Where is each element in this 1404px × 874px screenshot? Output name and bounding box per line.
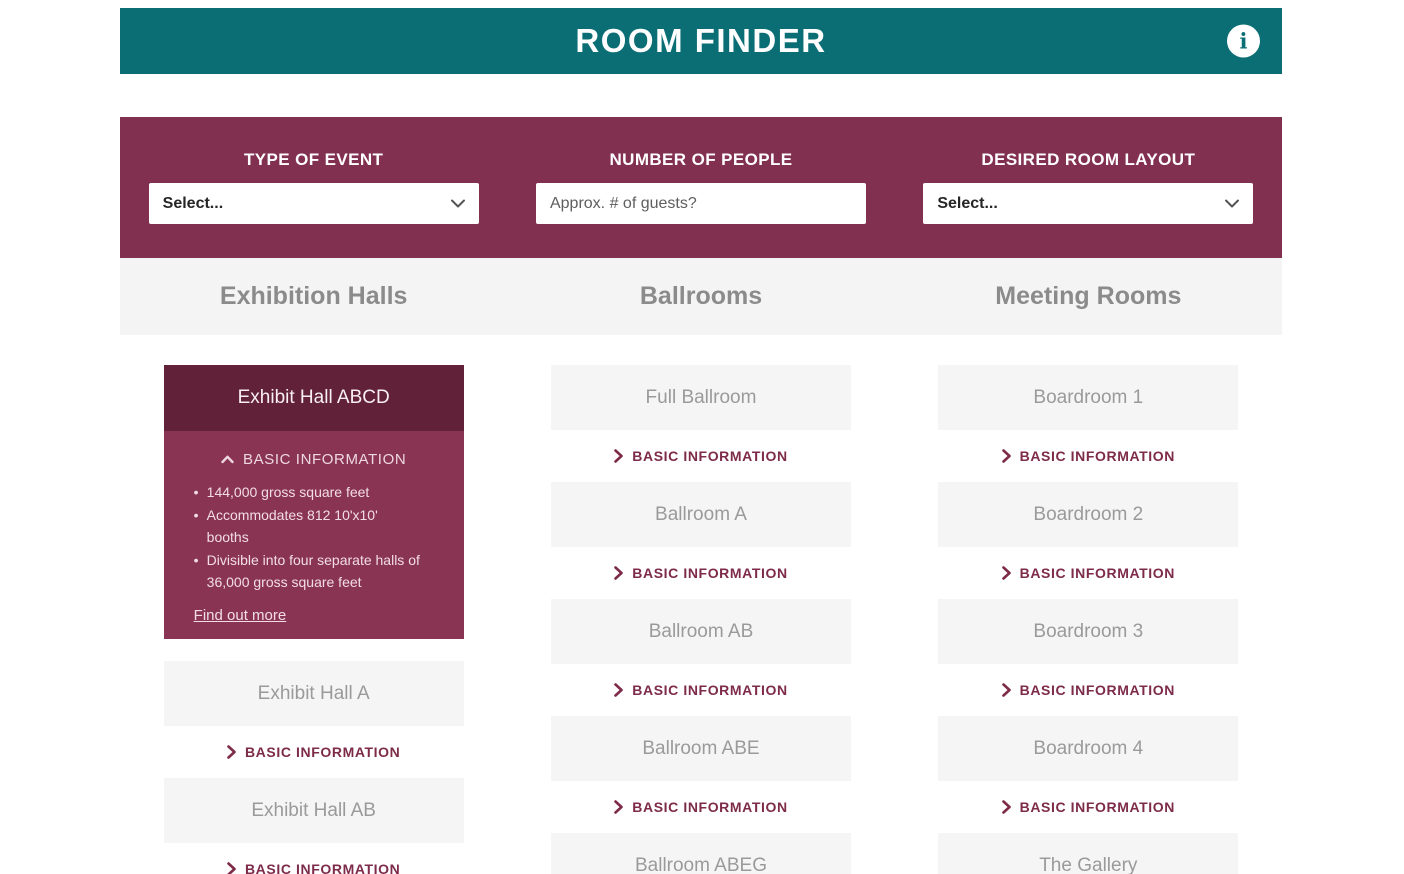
room-card-collapsed: Exhibit Hall AB BASIC INFORMATION [164, 778, 464, 874]
room-name: Ballroom A [655, 504, 747, 526]
room-detail-item: Divisible into four separate halls of 36… [194, 549, 421, 593]
basic-information-toggle[interactable]: BASIC INFORMATION [938, 547, 1238, 599]
basic-information-label: BASIC INFORMATION [632, 682, 787, 698]
header-bar: ROOM FINDER i [120, 8, 1282, 74]
chevron-right-icon [227, 862, 236, 874]
chevron-right-icon [1002, 566, 1011, 580]
number-of-people-label: NUMBER OF PEOPLE [609, 150, 792, 170]
room-name: Exhibit Hall AB [251, 800, 376, 822]
chevron-right-icon [1002, 683, 1011, 697]
room-details-list: 144,000 gross square feetAccommodates 81… [164, 481, 464, 593]
basic-information-toggle[interactable]: BASIC INFORMATION [551, 781, 851, 833]
room-detail-item: Accommodates 812 10'x10' booths [194, 504, 421, 548]
basic-information-toggle[interactable]: BASIC INFORMATION [551, 430, 851, 482]
page-title: ROOM FINDER [575, 22, 826, 60]
filter-group-desired-room-layout: DESIRED ROOM LAYOUT Select... [895, 117, 1282, 258]
room-name-box[interactable]: Boardroom 3 [938, 599, 1238, 664]
room-name: Boardroom 2 [1033, 504, 1143, 526]
room-name-box[interactable]: Ballroom A [551, 482, 851, 547]
basic-information-label: BASIC INFORMATION [632, 448, 787, 464]
room-name-box[interactable]: Ballroom ABE [551, 716, 851, 781]
chevron-right-icon [227, 745, 236, 759]
room-name-box[interactable]: Boardroom 2 [938, 482, 1238, 547]
section-title-exhibition-halls: Exhibition Halls [120, 282, 507, 311]
basic-information-label: BASIC INFORMATION [245, 861, 400, 874]
type-of-event-label: TYPE OF EVENT [244, 150, 383, 170]
basic-information-label: BASIC INFORMATION [1020, 448, 1175, 464]
basic-information-label: BASIC INFORMATION [632, 799, 787, 815]
basic-information-toggle[interactable]: BASIC INFORMATION [938, 781, 1238, 833]
room-name: Boardroom 4 [1033, 738, 1143, 760]
room-card-collapsed: Ballroom ABE BASIC INFORMATION [551, 716, 851, 833]
filter-group-type-of-event: TYPE OF EVENT Select... [120, 117, 507, 258]
room-card-collapsed: Ballroom AB BASIC INFORMATION [551, 599, 851, 716]
chevron-down-icon [451, 199, 465, 208]
room-name-box[interactable]: Exhibit Hall AB [164, 778, 464, 843]
room-card-expanded: Exhibit Hall ABCD BASIC INFORMATION 144,… [164, 365, 464, 639]
chevron-right-icon [614, 449, 623, 463]
room-name-box[interactable]: Ballroom ABEG [551, 833, 851, 874]
desired-room-layout-label: DESIRED ROOM LAYOUT [981, 150, 1195, 170]
chevron-right-icon [1002, 800, 1011, 814]
room-column-exhibition-halls: Exhibit Hall ABCD BASIC INFORMATION 144,… [120, 365, 507, 874]
room-card-collapsed: Exhibit Hall A BASIC INFORMATION [164, 661, 464, 778]
room-card-collapsed: Ballroom A BASIC INFORMATION [551, 482, 851, 599]
basic-information-label: BASIC INFORMATION [1020, 565, 1175, 581]
room-name-box[interactable]: Exhibit Hall A [164, 661, 464, 726]
room-name-box[interactable]: Ballroom AB [551, 599, 851, 664]
room-name: Exhibit Hall ABCD [238, 387, 390, 409]
chevron-right-icon [614, 566, 623, 580]
guest-count-input[interactable] [536, 183, 866, 224]
find-out-more-link[interactable]: Find out more [194, 607, 287, 624]
desired-room-layout-value: Select... [937, 195, 997, 213]
chevron-right-icon [614, 683, 623, 697]
room-card-collapsed: Boardroom 2 BASIC INFORMATION [938, 482, 1238, 599]
basic-information-label: BASIC INFORMATION [245, 744, 400, 760]
basic-information-label: BASIC INFORMATION [632, 565, 787, 581]
room-name: Ballroom ABEG [635, 855, 767, 874]
room-name: Exhibit Hall A [258, 683, 370, 705]
section-title-bar: Exhibition Halls Ballrooms Meeting Rooms [120, 258, 1282, 335]
room-name: Boardroom 3 [1033, 621, 1143, 643]
room-card-collapsed: Full Ballroom BASIC INFORMATION [551, 365, 851, 482]
room-details-panel: BASIC INFORMATION 144,000 gross square f… [164, 431, 464, 639]
basic-information-toggle[interactable]: BASIC INFORMATION [164, 726, 464, 778]
info-icon[interactable]: i [1227, 25, 1260, 58]
basic-information-toggle[interactable]: BASIC INFORMATION [938, 664, 1238, 716]
filter-group-number-of-people: NUMBER OF PEOPLE [507, 117, 894, 258]
chevron-right-icon [614, 800, 623, 814]
basic-information-toggle[interactable]: BASIC INFORMATION [164, 447, 464, 471]
room-name-box[interactable]: The Gallery [938, 833, 1238, 874]
room-card-collapsed: The Gallery BASIC INFORMATION [938, 833, 1238, 874]
room-name: Ballroom ABE [642, 738, 759, 760]
basic-information-toggle[interactable]: BASIC INFORMATION [938, 430, 1238, 482]
section-title-ballrooms: Ballrooms [507, 282, 894, 311]
room-name: Boardroom 1 [1033, 387, 1143, 409]
room-name-box[interactable]: Full Ballroom [551, 365, 851, 430]
room-name-box[interactable]: Boardroom 4 [938, 716, 1238, 781]
room-card-collapsed: Boardroom 1 BASIC INFORMATION [938, 365, 1238, 482]
room-column-ballrooms: Full Ballroom BASIC INFORMATION Ballroom… [507, 365, 894, 874]
room-card-collapsed: Boardroom 4 BASIC INFORMATION [938, 716, 1238, 833]
desired-room-layout-select[interactable]: Select... [923, 183, 1253, 224]
type-of-event-select[interactable]: Select... [149, 183, 479, 224]
basic-information-label: BASIC INFORMATION [1020, 799, 1175, 815]
room-card-columns: Exhibit Hall ABCD BASIC INFORMATION 144,… [120, 365, 1282, 874]
room-name-box[interactable]: Boardroom 1 [938, 365, 1238, 430]
basic-information-toggle[interactable]: BASIC INFORMATION [551, 547, 851, 599]
room-card-collapsed: Boardroom 3 BASIC INFORMATION [938, 599, 1238, 716]
room-name: Full Ballroom [646, 387, 757, 409]
chevron-down-icon [1225, 199, 1239, 208]
room-name: Ballroom AB [649, 621, 754, 643]
basic-information-toggle[interactable]: BASIC INFORMATION [164, 843, 464, 874]
info-icon-glyph: i [1240, 31, 1248, 52]
chevron-right-icon [1002, 449, 1011, 463]
basic-information-label: BASIC INFORMATION [243, 451, 406, 468]
chevron-up-icon [221, 455, 234, 464]
room-name: The Gallery [1039, 855, 1137, 874]
filter-bar: TYPE OF EVENT Select... NUMBER OF PEOPLE… [120, 117, 1282, 258]
basic-information-label: BASIC INFORMATION [1020, 682, 1175, 698]
room-finder-widget: ROOM FINDER i TYPE OF EVENT Select... NU… [120, 8, 1282, 874]
room-card-collapsed: Ballroom ABEG BASIC INFORMATION [551, 833, 851, 874]
room-name-box[interactable]: Exhibit Hall ABCD [164, 365, 464, 431]
room-column-meeting-rooms: Boardroom 1 BASIC INFORMATION Boardroom … [895, 365, 1282, 874]
type-of-event-value: Select... [163, 195, 223, 213]
basic-information-toggle[interactable]: BASIC INFORMATION [551, 664, 851, 716]
room-detail-item: 144,000 gross square feet [194, 481, 421, 503]
section-title-meeting-rooms: Meeting Rooms [895, 282, 1282, 311]
